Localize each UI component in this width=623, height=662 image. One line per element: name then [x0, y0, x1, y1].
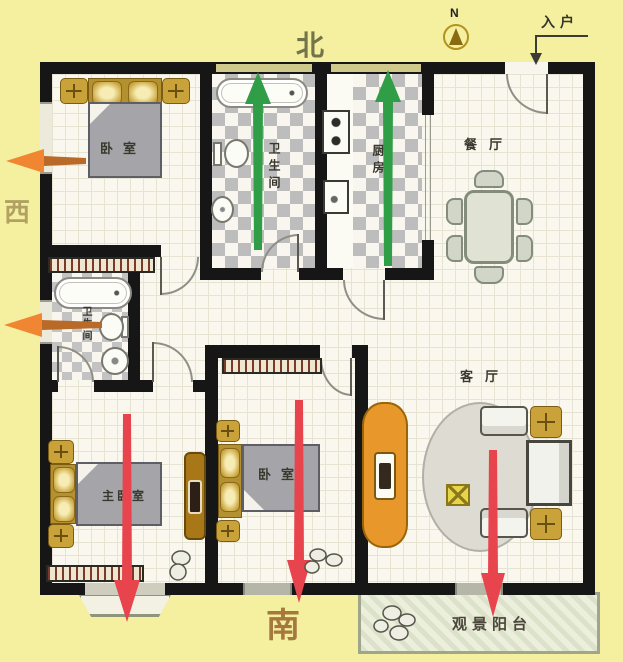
orange-arrow-bedroom-head	[6, 149, 44, 173]
toilet-north	[224, 139, 249, 168]
wall-bed-bath	[200, 62, 212, 280]
wardrobe-south	[222, 358, 322, 374]
wall-master-top-2	[94, 380, 153, 392]
sofa-main	[526, 440, 572, 506]
window-north-kitchen	[331, 64, 421, 72]
kitchen-sink	[323, 180, 349, 214]
entry-label: 入户	[541, 12, 579, 32]
bay-window-sill	[85, 583, 165, 595]
living-label: 客厅	[460, 366, 510, 385]
bay-window	[78, 593, 172, 617]
master-tv	[188, 480, 202, 514]
bedroom-south-door	[350, 358, 352, 396]
side-table	[530, 508, 562, 540]
side-table	[530, 406, 562, 438]
pillow	[53, 496, 75, 522]
dining-chair	[516, 198, 533, 225]
wall-hall-3	[385, 268, 434, 280]
wall-master-bedroom-divider	[205, 345, 218, 583]
dining-chair	[446, 235, 463, 262]
bathtub-west	[54, 277, 132, 309]
wall-master-top-1	[40, 380, 58, 392]
entry-door	[546, 74, 548, 114]
kitchen-label: 厨房	[370, 144, 387, 178]
stove	[322, 110, 350, 154]
dining-chair	[474, 266, 504, 284]
blanket-fold	[78, 464, 98, 484]
bathroom-north-door	[297, 234, 299, 272]
dining-label: 餐厅	[464, 134, 514, 153]
wall-right	[583, 62, 595, 595]
compass-needle-icon	[449, 28, 463, 45]
wall-kitchen-dining-top	[422, 62, 434, 115]
compass-n-label: N	[450, 6, 459, 20]
bathroom-west-door	[57, 346, 59, 382]
nightstand	[48, 440, 74, 464]
wall-bath-kitchen	[315, 62, 327, 280]
wall-bottom-3	[292, 583, 455, 595]
pillow	[53, 467, 75, 493]
living-tv-screen	[379, 463, 391, 489]
master-bedroom-label: 主卧室	[102, 487, 147, 504]
dining-chair	[516, 235, 533, 262]
coffee-table	[446, 484, 470, 506]
wall-bedroom-north-bottom	[40, 245, 161, 257]
orange-arrow-bath-head	[4, 313, 42, 337]
master-radiator	[46, 565, 144, 582]
wall-bottom-2	[165, 583, 243, 595]
bathroom-west-label: 卫生间	[78, 306, 93, 342]
pillow	[220, 448, 240, 478]
dining-table	[464, 190, 514, 264]
kitchen-floor	[353, 74, 422, 268]
nightstand	[60, 78, 88, 104]
balcony-door	[455, 583, 503, 595]
nightstand	[48, 524, 74, 548]
armchair	[480, 406, 528, 436]
balcony-label: 观景阳台	[452, 613, 532, 634]
wall-bottom-4	[503, 583, 595, 595]
north-label: 北	[296, 24, 324, 64]
bedroom-north-label: 卧室	[100, 138, 146, 157]
dining-chair	[474, 170, 504, 188]
south-label: 南	[266, 598, 300, 647]
wall-bottom-1	[40, 583, 85, 595]
hall-cabinet	[48, 257, 155, 273]
west-label: 西	[4, 192, 30, 229]
wall-hall-2	[299, 268, 343, 280]
sink-west	[101, 347, 129, 375]
window-west-bath	[40, 300, 52, 344]
floor-plan: 观景阳台 卧室	[0, 0, 623, 662]
dining-chair	[446, 198, 463, 225]
bathtub-north	[216, 78, 308, 108]
armchair	[480, 508, 528, 538]
wall-bedroom-south-top-1	[205, 345, 320, 358]
bathroom-north-label: 卫生间	[266, 142, 283, 193]
nightstand	[162, 78, 190, 104]
blanket-fold	[244, 490, 264, 510]
master-door	[152, 342, 154, 382]
window-west-bedroom	[40, 102, 52, 174]
nightstand	[216, 520, 240, 542]
sink-north	[211, 196, 234, 223]
bedroom-south-label: 卧室	[258, 464, 304, 483]
pillow	[220, 482, 240, 512]
entry-door-gap	[505, 62, 548, 74]
window-north-bath	[216, 64, 312, 72]
kitchen-slider	[425, 115, 431, 240]
toilet-west	[99, 313, 124, 341]
blanket-fold	[90, 104, 110, 124]
window-south-bedroom	[243, 583, 292, 595]
toilet-tank	[213, 142, 222, 166]
bedroom-north-door	[160, 257, 162, 295]
nightstand	[216, 420, 240, 442]
entry-arrow	[536, 36, 588, 54]
wall-hall-1	[200, 268, 261, 280]
kitchen-door	[383, 280, 385, 320]
kitchen-counter	[327, 74, 354, 268]
